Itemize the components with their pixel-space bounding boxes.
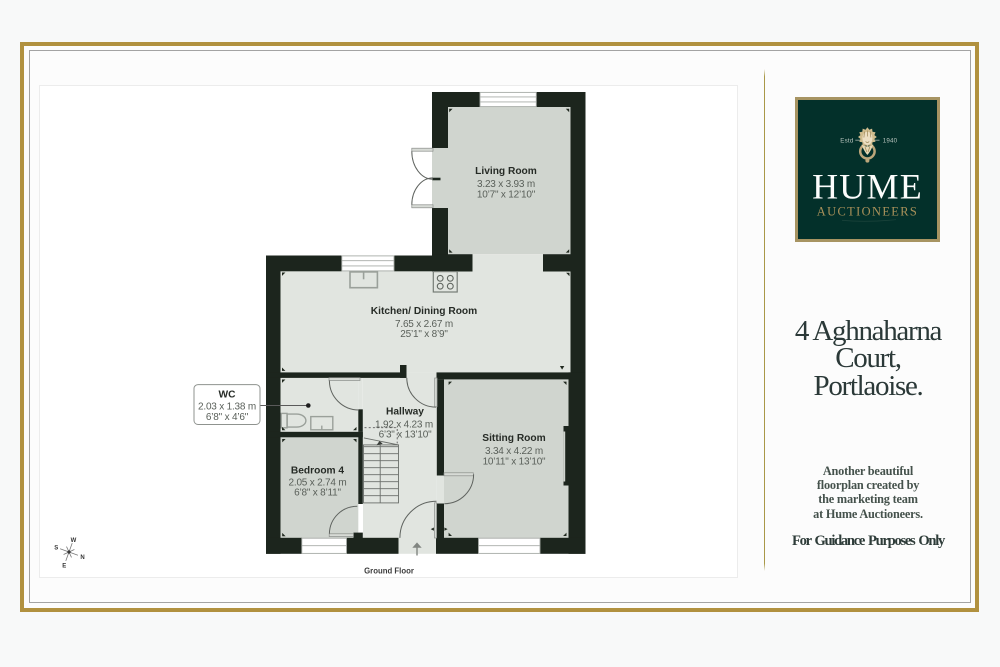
svg-text:Sitting Room: Sitting Room — [482, 433, 545, 444]
svg-text:3.34 x 4.22 m: 3.34 x 4.22 m — [485, 446, 543, 457]
svg-text:2.05 x 2.74 m: 2.05 x 2.74 m — [289, 477, 347, 488]
svg-text:10’7" x 12’10": 10’7" x 12’10" — [477, 189, 536, 200]
svg-text:E: E — [62, 563, 66, 569]
svg-text:Hallway: Hallway — [386, 406, 424, 417]
svg-text:10’11" x 13’10": 10’11" x 13’10" — [483, 457, 546, 468]
svg-text:S: S — [54, 546, 58, 552]
svg-text:3.23 x 3.93 m: 3.23 x 3.93 m — [477, 179, 535, 190]
svg-text:7.65 x 2.67 m: 7.65 x 2.67 m — [395, 319, 453, 330]
svg-text:WC: WC — [219, 390, 237, 401]
svg-text:N: N — [80, 555, 84, 561]
svg-text:Kitchen/ Dining Room: Kitchen/ Dining Room — [371, 306, 477, 317]
svg-text:W: W — [71, 538, 77, 544]
svg-text:Bedroom 4: Bedroom 4 — [291, 466, 345, 477]
svg-text:Living Room: Living Room — [475, 166, 537, 177]
svg-text:6’8" x 4’6": 6’8" x 4’6" — [206, 412, 249, 423]
svg-text:6’3" x 13’10": 6’3" x 13’10" — [379, 430, 433, 441]
svg-text:6’8" x 8’11": 6’8" x 8’11" — [294, 488, 341, 499]
svg-text:25’1" x 8’9": 25’1" x 8’9" — [400, 329, 448, 340]
svg-text:Ground Floor: Ground Floor — [364, 567, 414, 576]
